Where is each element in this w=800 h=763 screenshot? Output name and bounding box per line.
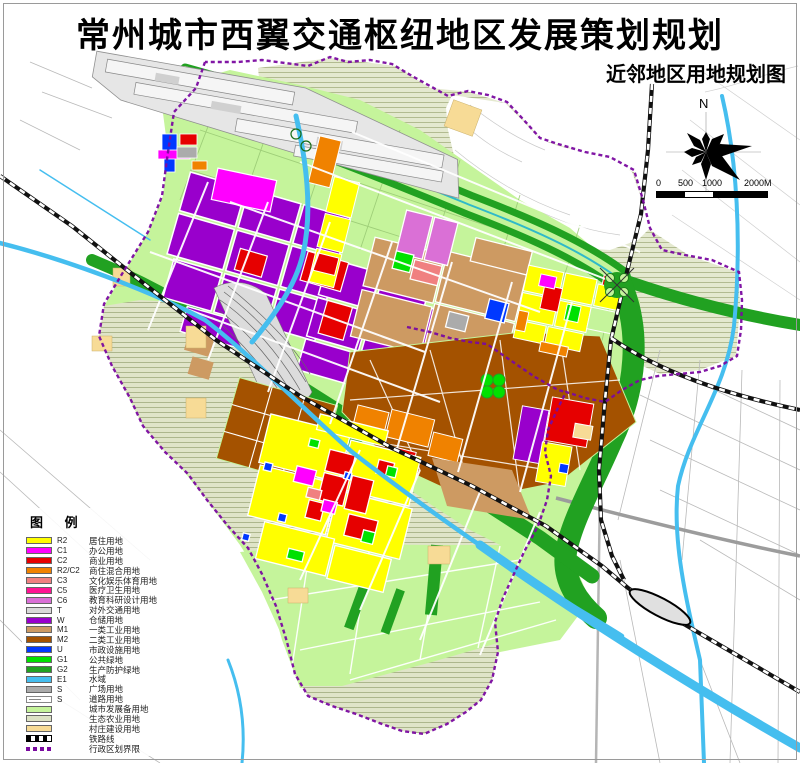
scale-label-500: 500 — [678, 178, 693, 188]
legend-swatch — [26, 715, 52, 722]
legend-title: 图 例 — [30, 512, 194, 531]
legend-swatch — [26, 676, 52, 683]
legend-swatch — [26, 656, 52, 663]
legend-swatch-road — [26, 696, 52, 703]
legend-swatch-railway — [26, 735, 52, 742]
page-title: 常州城市西翼交通枢纽地区发展策划规划 — [0, 8, 800, 57]
legend-item: G2生产防护绿地 — [26, 665, 194, 675]
legend-swatch — [26, 725, 52, 732]
legend-swatch — [26, 706, 52, 713]
legend-swatch — [26, 666, 52, 673]
scale-label-0: 0 — [656, 178, 661, 188]
legend-item-code: R2/C2 — [57, 566, 84, 575]
legend-item-code: E1 — [57, 675, 84, 684]
scale-bar-graphic — [656, 191, 768, 198]
legend-item-code: C3 — [57, 576, 84, 585]
legend-swatch — [26, 587, 52, 594]
legend-swatch — [26, 617, 52, 624]
legend-swatch — [26, 537, 52, 544]
legend-swatch — [26, 607, 52, 614]
legend-item-code: C1 — [57, 546, 84, 555]
legend-item-code: T — [57, 606, 84, 615]
legend: 图 例 R2居住用地 C1办公用地 C2商业用地 R2/C2商住混合用地 C3文… — [22, 508, 198, 756]
legend-item-code: M1 — [57, 625, 84, 634]
legend-item-code: C5 — [57, 586, 84, 595]
legend-item-code: R2 — [57, 536, 84, 545]
scale-bar: 0 500 1000 2000M — [654, 178, 774, 204]
legend-swatch — [26, 567, 52, 574]
legend-item: 行政区划界限 — [26, 744, 194, 754]
cloverleaf-interchange — [600, 268, 634, 302]
legend-item-label: 行政区划界限 — [89, 743, 140, 755]
legend-item-code: C2 — [57, 556, 84, 565]
legend-item-code: G2 — [57, 665, 84, 674]
legend-swatch — [26, 626, 52, 633]
legend-item-code: U — [57, 645, 84, 654]
scale-label-1000: 1000 — [702, 178, 722, 188]
legend-swatch — [26, 597, 52, 604]
legend-item-code: G1 — [57, 655, 84, 664]
legend-swatch — [26, 557, 52, 564]
legend-swatch — [26, 547, 52, 554]
legend-swatch — [26, 646, 52, 653]
legend-swatch-admin — [26, 747, 52, 751]
map-subtitle: 近邻地区用地规划图 — [606, 58, 786, 87]
legend-swatch — [26, 686, 52, 693]
legend-item-code: W — [57, 616, 84, 625]
legend-item-code: S — [57, 695, 84, 704]
page-root: 常州城市西翼交通枢纽地区发展策划规划 近邻地区用地规划图 N 0 500 100… — [0, 0, 800, 763]
legend-swatch — [26, 577, 52, 584]
legend-item-code: S — [57, 685, 84, 694]
legend-item-code: C6 — [57, 596, 84, 605]
legend-item-code: M2 — [57, 635, 84, 644]
legend-swatch — [26, 636, 52, 643]
scale-label-2000: 2000M — [744, 178, 772, 188]
